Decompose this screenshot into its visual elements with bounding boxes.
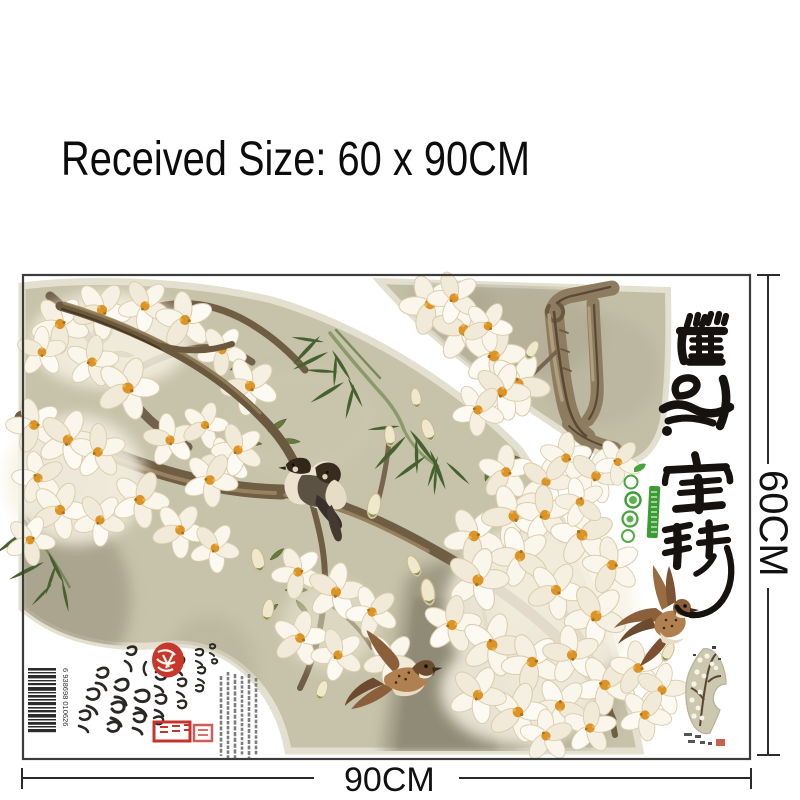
svg-text:60CM: 60CM [751,470,795,577]
svg-text:6 938698 010626: 6 938698 010626 [61,668,70,726]
svg-text:90CM: 90CM [344,761,435,799]
svg-text:Received Size: 60 x 90CM: Received Size: 60 x 90CM [61,133,530,186]
